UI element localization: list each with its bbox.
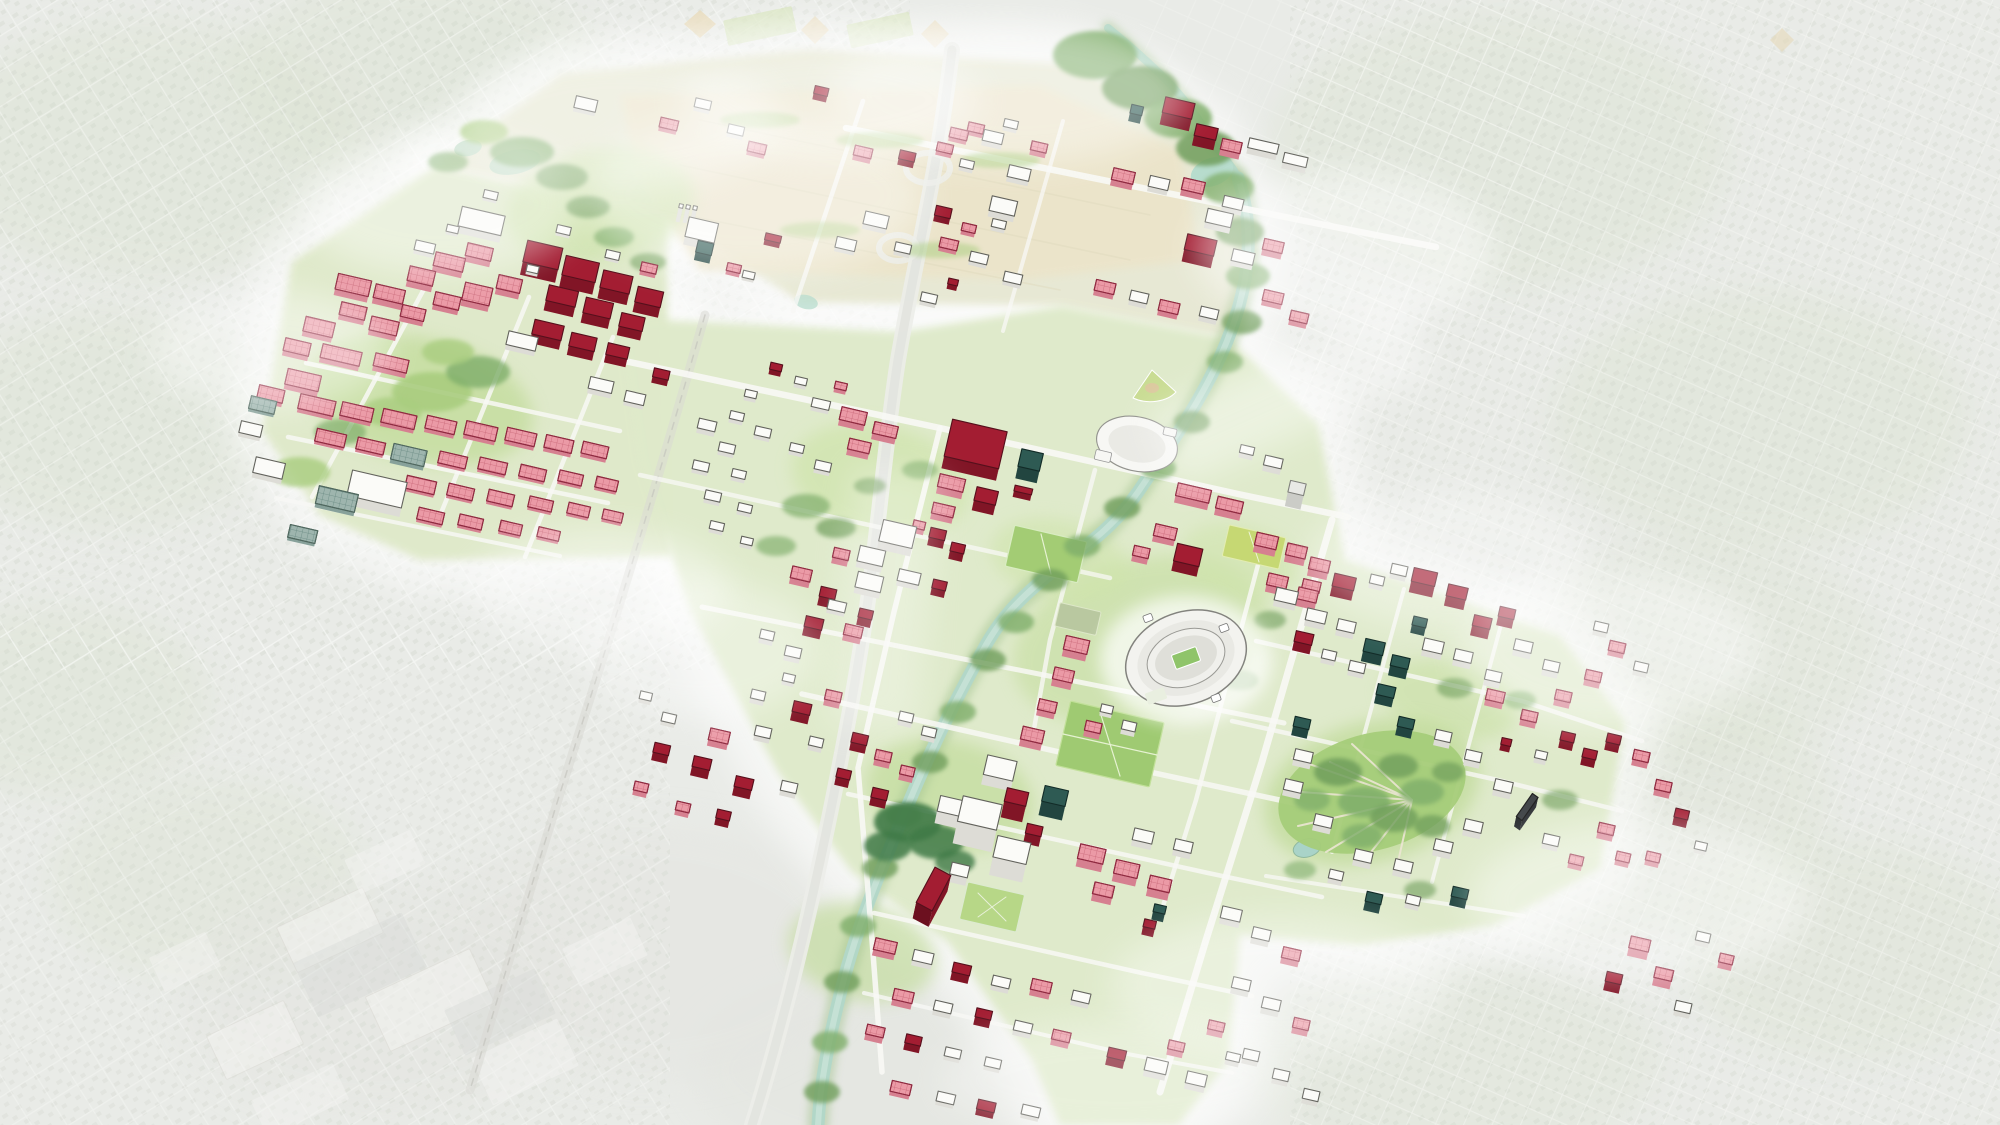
- screenshot-root: [0, 0, 2000, 1125]
- campus-aerial-masterplan-map: [0, 0, 2000, 1125]
